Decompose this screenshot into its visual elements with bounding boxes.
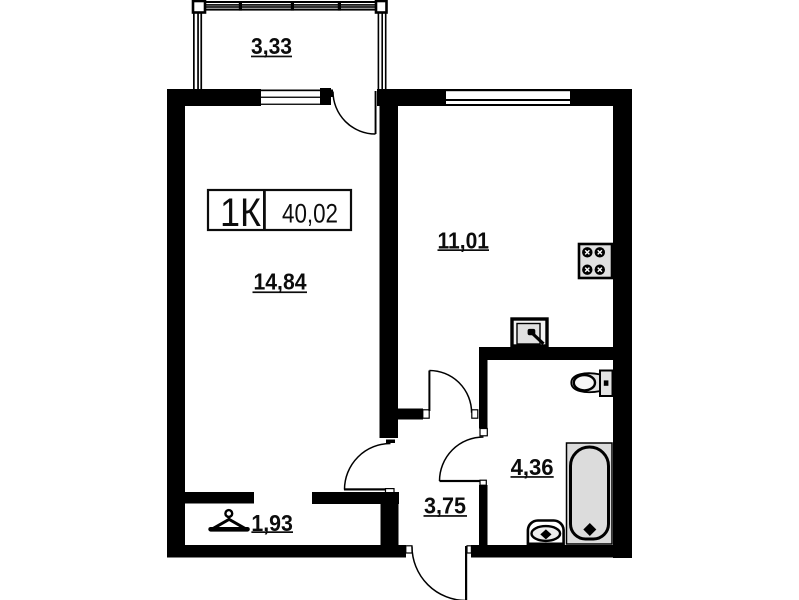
svg-text:40,02: 40,02 bbox=[282, 199, 338, 229]
svg-text:14,84: 14,84 bbox=[254, 269, 307, 295]
svg-text:3,75: 3,75 bbox=[424, 493, 466, 519]
svg-text:3,33: 3,33 bbox=[251, 33, 292, 59]
svg-text:1К: 1К bbox=[220, 191, 262, 235]
